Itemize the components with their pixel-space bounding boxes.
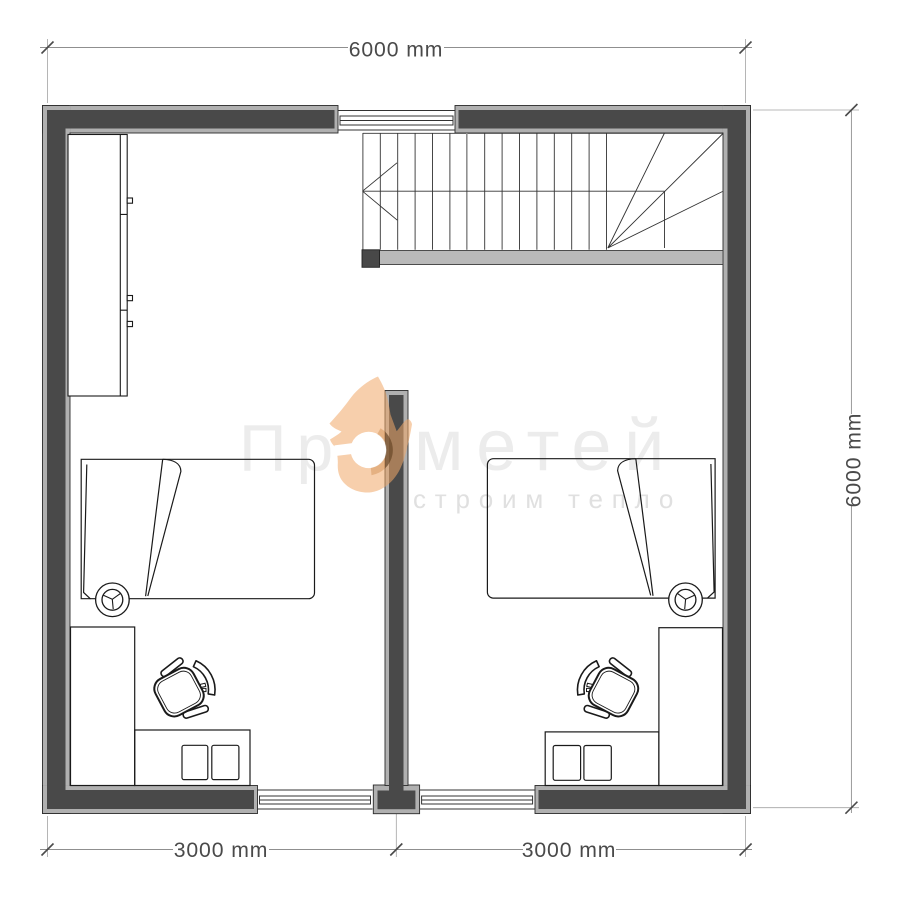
svg-text:Пр: Пр: [239, 411, 343, 485]
svg-text:6000 mm: 6000 mm: [843, 413, 866, 508]
svg-text:6000 mm: 6000 mm: [349, 38, 444, 61]
svg-text:3000 mm: 3000 mm: [174, 839, 269, 862]
svg-text:3000 mm: 3000 mm: [522, 839, 617, 862]
